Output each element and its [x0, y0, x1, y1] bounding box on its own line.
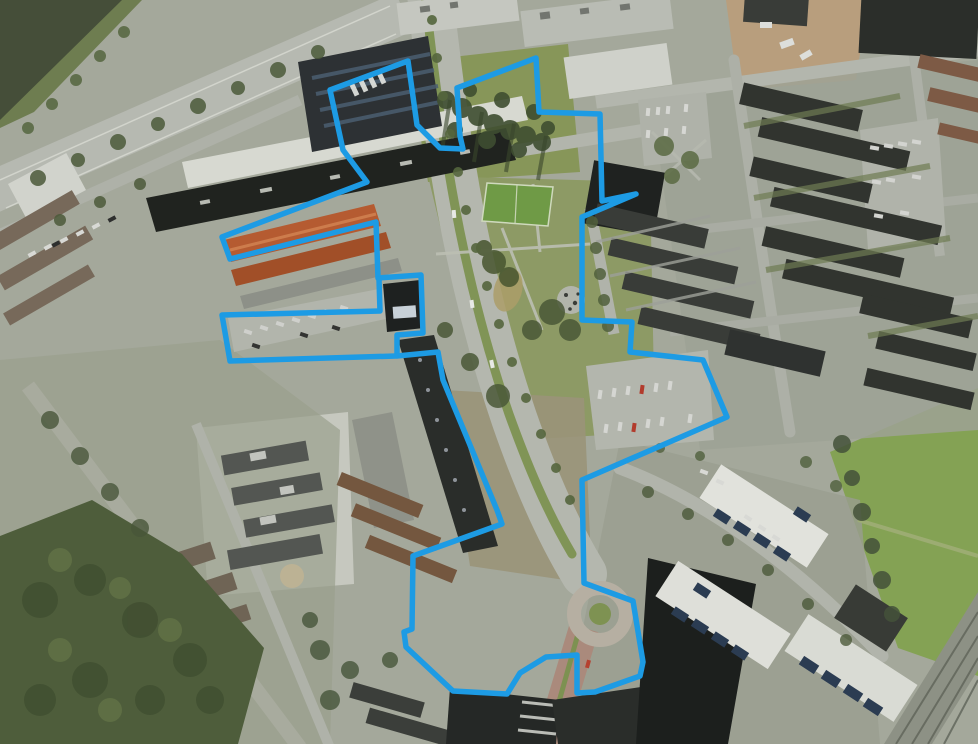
aerial-map-view — [0, 0, 978, 744]
aerial-photo — [0, 0, 978, 744]
building-dark-top-right-b — [859, 0, 978, 59]
school-playground-circle — [280, 564, 304, 588]
building-dark-top-right-a — [743, 0, 809, 26]
parking-lot-south — [586, 350, 714, 450]
building-small-loop — [383, 280, 424, 332]
roundabout-center-green — [589, 603, 611, 625]
shed-white-blue — [393, 305, 417, 319]
sports-field — [482, 183, 553, 226]
